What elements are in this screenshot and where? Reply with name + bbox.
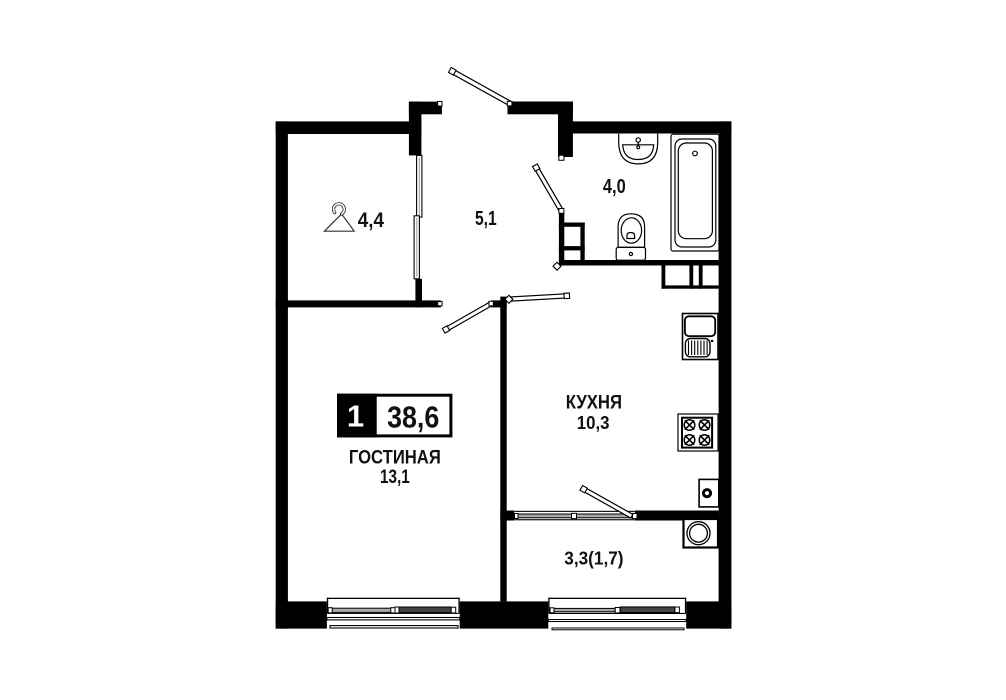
svg-text:13,1: 13,1 bbox=[380, 467, 410, 488]
svg-text:ГОСТИНАЯ: ГОСТИНАЯ bbox=[349, 448, 441, 469]
svg-text:10,3: 10,3 bbox=[577, 413, 610, 433]
svg-text:5,1: 5,1 bbox=[475, 208, 497, 230]
svg-text:3,3(1,7): 3,3(1,7) bbox=[564, 549, 623, 569]
svg-text:4,4: 4,4 bbox=[358, 209, 384, 232]
svg-text:1: 1 bbox=[347, 399, 364, 434]
svg-text:38,6: 38,6 bbox=[387, 400, 439, 435]
svg-text:КУХНЯ: КУХНЯ bbox=[566, 393, 622, 414]
svg-text:4,0: 4,0 bbox=[603, 176, 626, 198]
